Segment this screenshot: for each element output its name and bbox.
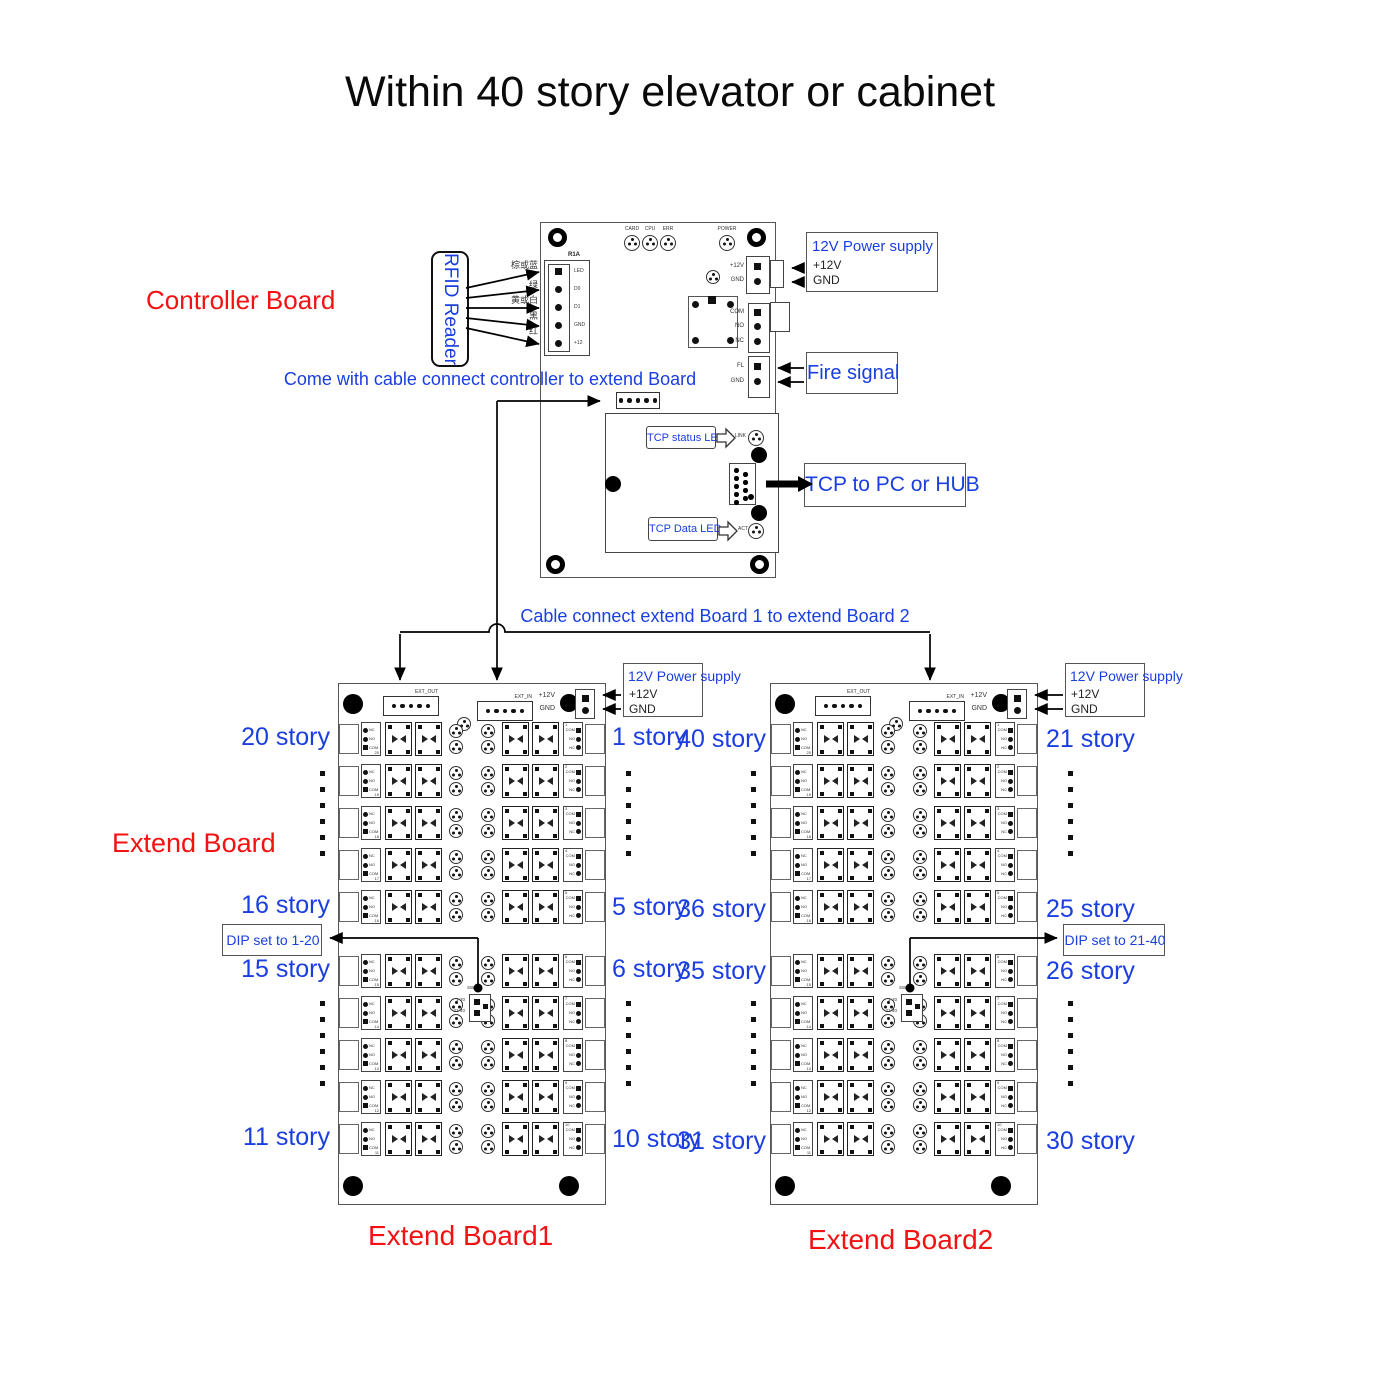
ellipsis-dot <box>320 1065 325 1070</box>
screw-terminal <box>771 956 791 986</box>
relay <box>934 722 961 756</box>
terminal-pins: COMNONC9 <box>995 1080 1015 1114</box>
terminal-pins: NCNOCOM18 <box>361 806 381 840</box>
relay-symbol-icon <box>971 735 985 743</box>
terminal-pins: COMNONC6 <box>563 954 583 988</box>
terminal-pins: NCNOCOM11 <box>361 1122 381 1156</box>
led-indicator <box>881 724 895 738</box>
relay <box>385 890 412 924</box>
relay <box>415 890 442 924</box>
relay <box>502 806 529 840</box>
led-indicator <box>881 824 895 838</box>
screw-terminal <box>585 1082 605 1112</box>
relay-symbol-icon <box>941 819 955 827</box>
screw-terminal <box>585 892 605 922</box>
dip-name-label: SW4 <box>899 986 909 991</box>
screw-terminal <box>1017 1040 1037 1070</box>
relay-symbol-icon <box>509 967 523 975</box>
relay <box>502 890 529 924</box>
terminal-pins: NCNOCOM17 <box>793 848 813 882</box>
relay-symbol-icon <box>941 903 955 911</box>
relay <box>415 1038 442 1072</box>
relay-symbol-icon <box>392 1135 406 1143</box>
terminal-pins: COMNONC7 <box>995 996 1015 1030</box>
dip-name-label: SW4 <box>467 986 477 991</box>
relay-symbol-icon <box>539 967 553 975</box>
ext-connector: EXT_OUT <box>815 696 871 716</box>
relay <box>964 996 991 1030</box>
screw-terminal <box>1017 724 1037 754</box>
screw-terminal <box>771 998 791 1028</box>
led-indicator <box>881 1082 895 1096</box>
relay <box>385 848 412 882</box>
led-indicator <box>449 892 463 906</box>
relay-symbol-icon <box>539 1093 553 1101</box>
relay-symbol-icon <box>509 819 523 827</box>
ellipsis-dot <box>1068 1081 1073 1086</box>
terminal-pins: NCNOCOM12 <box>361 1080 381 1114</box>
terminal-pins: COMNONC9 <box>563 1080 583 1114</box>
relay <box>532 1038 559 1072</box>
relay-symbol-icon <box>854 777 868 785</box>
screw-terminal <box>585 956 605 986</box>
led-indicator <box>481 956 495 970</box>
terminal-pins: COMNONC5 <box>563 890 583 924</box>
relay-symbol-icon <box>509 861 523 869</box>
relay-symbol-icon <box>824 777 838 785</box>
led-indicator <box>913 1098 927 1112</box>
terminal-pins: NCNOCOM14 <box>793 996 813 1030</box>
terminal-pins: COMNONC2 <box>563 764 583 798</box>
relay-symbol-icon <box>539 861 553 869</box>
relay-symbol-icon <box>941 1051 955 1059</box>
relay <box>415 1122 442 1156</box>
relay-symbol-icon <box>422 1135 436 1143</box>
relay <box>532 1122 559 1156</box>
ellipsis-dot <box>751 787 756 792</box>
screw-terminal <box>1017 808 1037 838</box>
terminal-pins: NCNOCOM20 <box>793 722 813 756</box>
led-indicator <box>481 892 495 906</box>
ellipsis-dot <box>320 851 325 856</box>
ellipsis-dot <box>320 835 325 840</box>
terminal-pins: NCNOCOM12 <box>793 1080 813 1114</box>
relay-symbol-icon <box>824 1051 838 1059</box>
screw-terminal <box>771 892 791 922</box>
led-indicator <box>449 1140 463 1154</box>
screw-terminal <box>339 850 359 880</box>
relay <box>502 848 529 882</box>
ellipsis-dot <box>320 1081 325 1086</box>
screw-terminal <box>585 1040 605 1070</box>
led-indicator <box>449 824 463 838</box>
relay-symbol-icon <box>971 777 985 785</box>
led-indicator <box>881 908 895 922</box>
relay-symbol-icon <box>971 861 985 869</box>
ellipsis-dot <box>626 771 631 776</box>
led-indicator <box>913 1082 927 1096</box>
led-indicator <box>449 972 463 986</box>
led-indicator <box>449 724 463 738</box>
terminal-pins: NCNOCOM20 <box>361 722 381 756</box>
screw-terminal <box>585 766 605 796</box>
led-indicator <box>881 1014 895 1028</box>
ellipsis-dot <box>1068 851 1073 856</box>
connector-label: EXT_OUT <box>847 690 870 695</box>
screw-terminal <box>339 1082 359 1112</box>
screw-terminal <box>1017 850 1037 880</box>
mount-hole <box>991 1176 1011 1196</box>
terminal-pins: NCNOCOM16 <box>361 890 381 924</box>
relay <box>502 1038 529 1072</box>
relay <box>817 1038 844 1072</box>
relay-symbol-icon <box>824 735 838 743</box>
led-indicator <box>913 850 927 864</box>
led-indicator <box>449 908 463 922</box>
terminal-pins: COMNONC1 <box>563 722 583 756</box>
relay-symbol-icon <box>539 903 553 911</box>
relay <box>385 806 412 840</box>
relay-symbol-icon <box>941 735 955 743</box>
screw-terminal <box>339 892 359 922</box>
screw-terminal <box>339 808 359 838</box>
screw-terminal <box>339 956 359 986</box>
led-indicator <box>913 1056 927 1070</box>
terminal-pins: NCNOCOM14 <box>361 996 381 1030</box>
relay-symbol-icon <box>509 735 523 743</box>
relay <box>934 806 961 840</box>
relay <box>385 1080 412 1114</box>
relay <box>964 1080 991 1114</box>
ellipsis-dot <box>626 1081 631 1086</box>
led-indicator <box>481 766 495 780</box>
ellipsis-dot <box>1068 819 1073 824</box>
relay-symbol-icon <box>392 735 406 743</box>
dip-option-label: 1-20 <box>867 998 897 1003</box>
relay-symbol-icon <box>941 967 955 975</box>
relay-symbol-icon <box>422 777 436 785</box>
terminal-pins: NCNOCOM13 <box>793 1038 813 1072</box>
relay <box>817 1080 844 1114</box>
relay <box>964 1038 991 1072</box>
ellipsis-dot <box>320 787 325 792</box>
terminal-pins: NCNOCOM15 <box>793 954 813 988</box>
screw-terminal <box>339 724 359 754</box>
ellipsis-dot <box>626 803 631 808</box>
relay <box>502 1080 529 1114</box>
relay <box>502 954 529 988</box>
terminal-pins: NCNOCOM18 <box>793 806 813 840</box>
relay <box>934 1038 961 1072</box>
relay <box>532 996 559 1030</box>
relay-symbol-icon <box>971 903 985 911</box>
ellipsis-dot <box>320 803 325 808</box>
relay-symbol-icon <box>392 1051 406 1059</box>
relay <box>817 890 844 924</box>
relay-symbol-icon <box>422 1051 436 1059</box>
ellipsis-dot <box>626 1065 631 1070</box>
led-indicator <box>449 1056 463 1070</box>
relay-symbol-icon <box>824 967 838 975</box>
led-indicator <box>481 1040 495 1054</box>
relay-symbol-icon <box>824 1009 838 1017</box>
mount-hole <box>775 694 795 714</box>
relay-symbol-icon <box>854 967 868 975</box>
led-indicator <box>481 1098 495 1112</box>
led-indicator <box>913 808 927 822</box>
relay <box>415 954 442 988</box>
relay-symbol-icon <box>539 777 553 785</box>
relay-symbol-icon <box>422 735 436 743</box>
led-indicator <box>481 1124 495 1138</box>
relay-symbol-icon <box>971 1009 985 1017</box>
ellipsis-dot <box>626 1049 631 1054</box>
terminal-pins: COMNONC10 <box>563 1122 583 1156</box>
ellipsis-dot <box>1068 803 1073 808</box>
relay-symbol-icon <box>509 1093 523 1101</box>
led-indicator <box>881 740 895 754</box>
led-indicator <box>913 1124 927 1138</box>
screw-terminal <box>585 1124 605 1154</box>
relay <box>847 1122 874 1156</box>
relay <box>817 848 844 882</box>
ellipsis-dot <box>751 851 756 856</box>
relay-symbol-icon <box>854 1093 868 1101</box>
ellipsis-dot <box>1068 1017 1073 1022</box>
led-indicator <box>913 892 927 906</box>
terminal-pins: COMNONC2 <box>995 764 1015 798</box>
relay <box>817 954 844 988</box>
relay-symbol-icon <box>824 819 838 827</box>
terminal-pins: NCNOCOM15 <box>361 954 381 988</box>
extend-board-pcb: EXT_OUTEXT_IN+12VGNDNCNOCOM20COMNONC1NCN… <box>338 683 606 1205</box>
dip-option-label: 21-40 <box>431 1009 465 1014</box>
ellipsis-dot <box>751 1033 756 1038</box>
screw-terminal <box>585 724 605 754</box>
led-indicator <box>481 1056 495 1070</box>
terminal-pins: COMNONC8 <box>563 1038 583 1072</box>
led-indicator <box>881 892 895 906</box>
relay <box>847 1038 874 1072</box>
ellipsis-dot <box>1068 1065 1073 1070</box>
led-indicator <box>913 866 927 880</box>
terminal-pins: COMNONC8 <box>995 1038 1015 1072</box>
terminal-pins: NCNOCOM13 <box>361 1038 381 1072</box>
screw-terminal <box>585 850 605 880</box>
ellipsis-dot <box>751 803 756 808</box>
dip-option-label: 21-40 <box>863 1009 897 1014</box>
led-indicator <box>913 1140 927 1154</box>
screw-terminal <box>1017 998 1037 1028</box>
relay-symbol-icon <box>509 1051 523 1059</box>
led-indicator <box>913 1040 927 1054</box>
led-indicator <box>881 956 895 970</box>
relay <box>964 722 991 756</box>
relay-symbol-icon <box>854 1135 868 1143</box>
relay <box>385 722 412 756</box>
extend-board-pcb: EXT_OUTEXT_IN+12VGNDNCNOCOM20COMNONC1NCN… <box>770 683 1038 1205</box>
led-indicator <box>913 972 927 986</box>
relay <box>385 996 412 1030</box>
connector-label: EXT_OUT <box>415 690 438 695</box>
relay-symbol-icon <box>422 1093 436 1101</box>
relay-symbol-icon <box>941 861 955 869</box>
screw-terminal <box>1017 1082 1037 1112</box>
terminal-pins: NCNOCOM11 <box>793 1122 813 1156</box>
relay-symbol-icon <box>392 861 406 869</box>
led-indicator <box>481 824 495 838</box>
relay <box>964 848 991 882</box>
terminal-pins: COMNONC4 <box>995 848 1015 882</box>
relay-symbol-icon <box>824 861 838 869</box>
screw-terminal <box>585 808 605 838</box>
led-indicator <box>481 1082 495 1096</box>
screw-terminal <box>585 998 605 1028</box>
relay <box>934 996 961 1030</box>
led-indicator <box>449 1040 463 1054</box>
led-indicator <box>481 782 495 796</box>
relay <box>415 1080 442 1114</box>
relay <box>847 806 874 840</box>
relay <box>934 890 961 924</box>
ellipsis-dot <box>1068 835 1073 840</box>
ellipsis-dot <box>320 771 325 776</box>
relay-symbol-icon <box>392 967 406 975</box>
relay-symbol-icon <box>422 967 436 975</box>
relay <box>532 764 559 798</box>
power-pin-label: GND <box>521 705 555 712</box>
terminal-pins: COMNONC6 <box>995 954 1015 988</box>
relay <box>934 848 961 882</box>
ellipsis-dot <box>751 1001 756 1006</box>
ellipsis-dot <box>320 1033 325 1038</box>
relay <box>532 954 559 988</box>
led-indicator <box>481 808 495 822</box>
relay-symbol-icon <box>422 819 436 827</box>
relay-symbol-icon <box>854 1051 868 1059</box>
terminal-pins: COMNONC5 <box>995 890 1015 924</box>
relay-symbol-icon <box>941 1093 955 1101</box>
led-indicator <box>449 1082 463 1096</box>
relay-symbol-icon <box>422 903 436 911</box>
screw-terminal <box>1017 766 1037 796</box>
relay <box>817 722 844 756</box>
relay <box>385 954 412 988</box>
terminal-pins: NCNOCOM17 <box>361 848 381 882</box>
relay-symbol-icon <box>539 1051 553 1059</box>
led-indicator <box>913 908 927 922</box>
relay-symbol-icon <box>539 1135 553 1143</box>
relay <box>502 1122 529 1156</box>
led-indicator <box>449 850 463 864</box>
ellipsis-dot <box>626 851 631 856</box>
terminal-pins: COMNONC10 <box>995 1122 1015 1156</box>
led-indicator <box>881 1056 895 1070</box>
relay-symbol-icon <box>971 1093 985 1101</box>
led-indicator <box>481 850 495 864</box>
extend-boards-container: EXT_OUTEXT_IN+12VGNDNCNOCOM20COMNONC1NCN… <box>0 0 1400 1400</box>
led-indicator <box>881 1124 895 1138</box>
relay <box>847 764 874 798</box>
relay-symbol-icon <box>539 735 553 743</box>
relay <box>532 722 559 756</box>
relay <box>415 806 442 840</box>
relay <box>847 890 874 924</box>
mount-hole <box>343 694 363 714</box>
relay <box>817 806 844 840</box>
dip-switch <box>469 994 491 1022</box>
ellipsis-dot <box>320 1017 325 1022</box>
power-terminal <box>575 689 595 719</box>
relay-symbol-icon <box>941 777 955 785</box>
led-indicator <box>881 782 895 796</box>
led-indicator <box>881 1140 895 1154</box>
screw-terminal <box>339 1040 359 1070</box>
relay <box>385 1038 412 1072</box>
relay-symbol-icon <box>509 903 523 911</box>
relay <box>934 954 961 988</box>
led-indicator <box>449 1098 463 1112</box>
led-indicator <box>481 866 495 880</box>
led-indicator <box>913 724 927 738</box>
screw-terminal <box>771 850 791 880</box>
led-indicator <box>481 908 495 922</box>
led-indicator <box>481 740 495 754</box>
dip-switch <box>901 994 923 1022</box>
ellipsis-dot <box>751 771 756 776</box>
relay-symbol-icon <box>971 1051 985 1059</box>
led-indicator <box>881 808 895 822</box>
led-indicator <box>881 1040 895 1054</box>
ellipsis-dot <box>751 1065 756 1070</box>
relay <box>934 1122 961 1156</box>
mount-hole <box>775 1176 795 1196</box>
ellipsis-dot <box>626 1001 631 1006</box>
screw-terminal <box>771 1124 791 1154</box>
relay <box>964 954 991 988</box>
relay <box>502 764 529 798</box>
relay <box>964 806 991 840</box>
screw-terminal <box>771 1040 791 1070</box>
terminal-pins: COMNONC3 <box>995 806 1015 840</box>
ellipsis-dot <box>751 1017 756 1022</box>
relay-symbol-icon <box>509 1135 523 1143</box>
relay-symbol-icon <box>824 1135 838 1143</box>
terminal-pins: NCNOCOM19 <box>793 764 813 798</box>
terminal-pins: NCNOCOM16 <box>793 890 813 924</box>
relay <box>502 996 529 1030</box>
relay <box>964 764 991 798</box>
relay-symbol-icon <box>971 819 985 827</box>
led-indicator <box>481 972 495 986</box>
led-indicator <box>481 724 495 738</box>
led-indicator <box>913 740 927 754</box>
screw-terminal <box>339 1124 359 1154</box>
relay <box>934 1080 961 1114</box>
relay <box>847 954 874 988</box>
ellipsis-dot <box>626 1033 631 1038</box>
relay <box>847 848 874 882</box>
relay <box>847 722 874 756</box>
ellipsis-dot <box>320 1049 325 1054</box>
led-indicator <box>913 956 927 970</box>
relay-symbol-icon <box>539 1009 553 1017</box>
relay <box>415 764 442 798</box>
ellipsis-dot <box>320 1001 325 1006</box>
relay <box>415 848 442 882</box>
screw-terminal <box>1017 892 1037 922</box>
led-indicator <box>881 866 895 880</box>
